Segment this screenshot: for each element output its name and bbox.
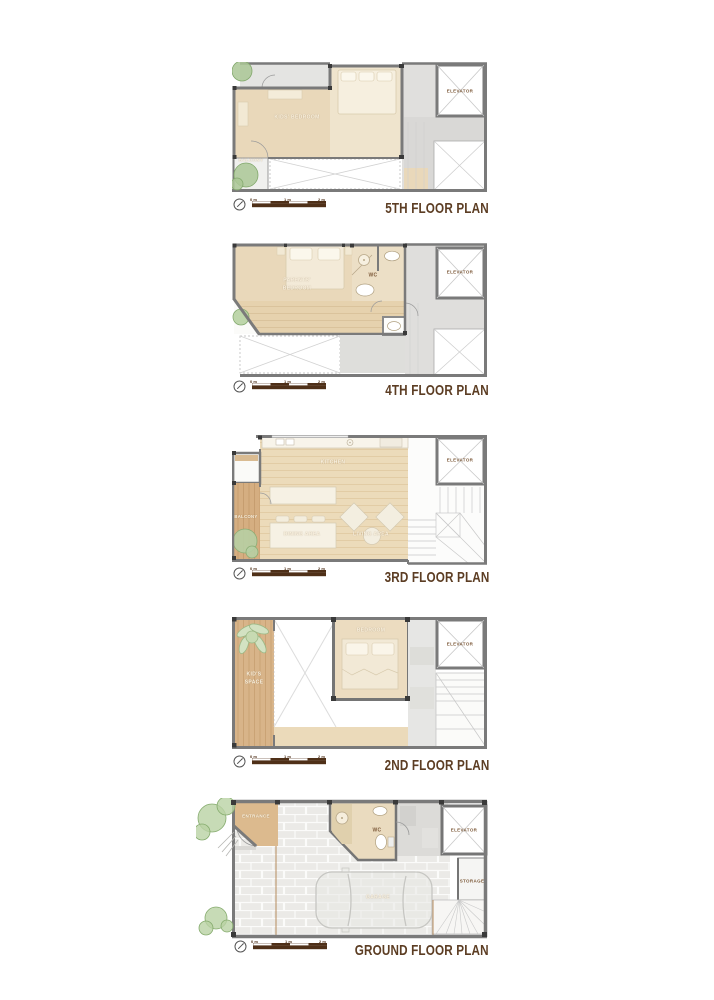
floorplan-ground: ENTRANCE WC ELEVATOR STORAGE GARAGE (196, 798, 488, 940)
north-arrow-icon (233, 567, 246, 580)
desk (268, 90, 302, 99)
kitchen-island (270, 487, 336, 504)
scale-bar: 0 m 1 m 2 m (253, 943, 327, 950)
room-label-wc: WC (368, 272, 377, 280)
room-label-entrance: ENTRANCE (242, 814, 270, 821)
floorplan-2nd: KID'S SPACE BEDROOM ELEVATOR (232, 617, 487, 749)
title-2nd-floor: 2ND FLOOR PLAN (384, 757, 489, 774)
window (272, 436, 348, 438)
room-label-kids-space: KID'S SPACE (245, 672, 264, 687)
scale-bar: 0 m 1 m 2 m (252, 758, 326, 765)
room-label-elevator: ELEVATOR (447, 642, 474, 649)
hall-floor (274, 727, 408, 747)
room-label-kitchen: KITCHEN (321, 459, 346, 467)
title-4th-floor: 4TH FLOOR PLAN (385, 382, 489, 399)
scale-tick: 1 m (284, 197, 291, 202)
scale-tick: 2 m (318, 566, 325, 571)
room-label-garage: GARAGE (366, 894, 390, 902)
legend-4th: 0 m 1 m 2 m (233, 380, 326, 394)
scale-tick: 0 m (250, 754, 257, 759)
scale-tick: 1 m (284, 379, 291, 384)
room-label-balcony: BALCONY (239, 158, 264, 165)
scale-bar: 0 m 1 m 2 m (252, 201, 326, 208)
stairs (432, 900, 486, 934)
scale-tick: 0 m (250, 566, 257, 571)
scale-tick: 2 m (318, 754, 325, 759)
floorplan-4th-drawing (232, 243, 487, 377)
room-label-elevator: ELEVATOR (447, 89, 474, 96)
legend-ground: 0 m 1 m 2 m (234, 940, 327, 954)
terrace-strip (408, 619, 436, 747)
scale-tick: 2 m (318, 197, 325, 202)
floorplan-5th-drawing (232, 62, 487, 192)
scale-tick: 1 m (285, 939, 292, 944)
north-arrow-icon (233, 755, 246, 768)
scale-bar: 0 m 1 m 2 m (252, 570, 326, 577)
bed (338, 70, 396, 114)
scale-tick: 2 m (318, 379, 325, 384)
title-3rd-floor: 3RD FLOOR PLAN (384, 569, 489, 586)
legend-3rd: 0 m 1 m 2 m (233, 567, 326, 581)
floorplan-2nd-drawing (232, 617, 487, 749)
title-ground-floor: GROUND FLOOR PLAN (355, 942, 489, 959)
kitchen-counter (262, 437, 408, 448)
scale-tick: 0 m (250, 197, 257, 202)
scale-tick: 0 m (251, 939, 258, 944)
room-label-kids-bedroom: KIDS' BEDROOM (274, 114, 319, 122)
room-label-wc: WC (372, 827, 381, 835)
wood-floor (234, 301, 405, 334)
stairs (436, 673, 486, 747)
north-arrow-icon (233, 380, 246, 393)
room-label-elevator: ELEVATOR (447, 270, 474, 277)
north-arrow-icon (234, 940, 247, 953)
storage-room (233, 453, 260, 483)
room-label-dining: DINING AREA (284, 531, 321, 539)
room-label-elevator: ELEVATOR (447, 458, 474, 465)
room-label-storage: STORAGE (460, 879, 485, 886)
scale-tick: 0 m (250, 379, 257, 384)
scale-bar: 0 m 1 m 2 m (252, 383, 326, 390)
scale-tick: 2 m (319, 939, 326, 944)
room-label-bedroom: BEDROOM (357, 627, 386, 635)
lower-bathroom (383, 317, 405, 335)
legend-5th: 0 m 1 m 2 m (233, 198, 326, 212)
floorplan-3rd-drawing (232, 435, 487, 565)
terrace (240, 63, 330, 88)
room-label-elevator: ELEVATOR (451, 828, 478, 835)
terrace (340, 336, 405, 373)
floorplan-4th: PARENTS' BEDROOM WC ELEVATOR (232, 243, 487, 377)
floorplan-5th: KIDS' BEDROOM BALCONY ELEVATOR (232, 62, 487, 192)
room-label-parents-bedroom: PARENTS' BEDROOM (283, 278, 312, 293)
wardrobe (238, 102, 248, 126)
floorplan-ground-drawing (196, 798, 488, 940)
room-label-balcony: BALCONY (234, 514, 257, 520)
north-arrow-icon (233, 198, 246, 211)
scale-tick: 1 m (284, 566, 291, 571)
drawing-sheet: KIDS' BEDROOM BALCONY ELEVATOR 0 m 1 m 2… (0, 0, 714, 1000)
floorplan-3rd: KITCHEN BALCONY DINING AREA LIVING AREA … (232, 435, 487, 565)
title-5th-floor: 5TH FLOOR PLAN (385, 200, 489, 217)
room-label-living: LIVING AREA (353, 531, 389, 539)
scale-tick: 1 m (284, 754, 291, 759)
legend-2nd: 0 m 1 m 2 m (233, 755, 326, 769)
tree (196, 798, 235, 935)
